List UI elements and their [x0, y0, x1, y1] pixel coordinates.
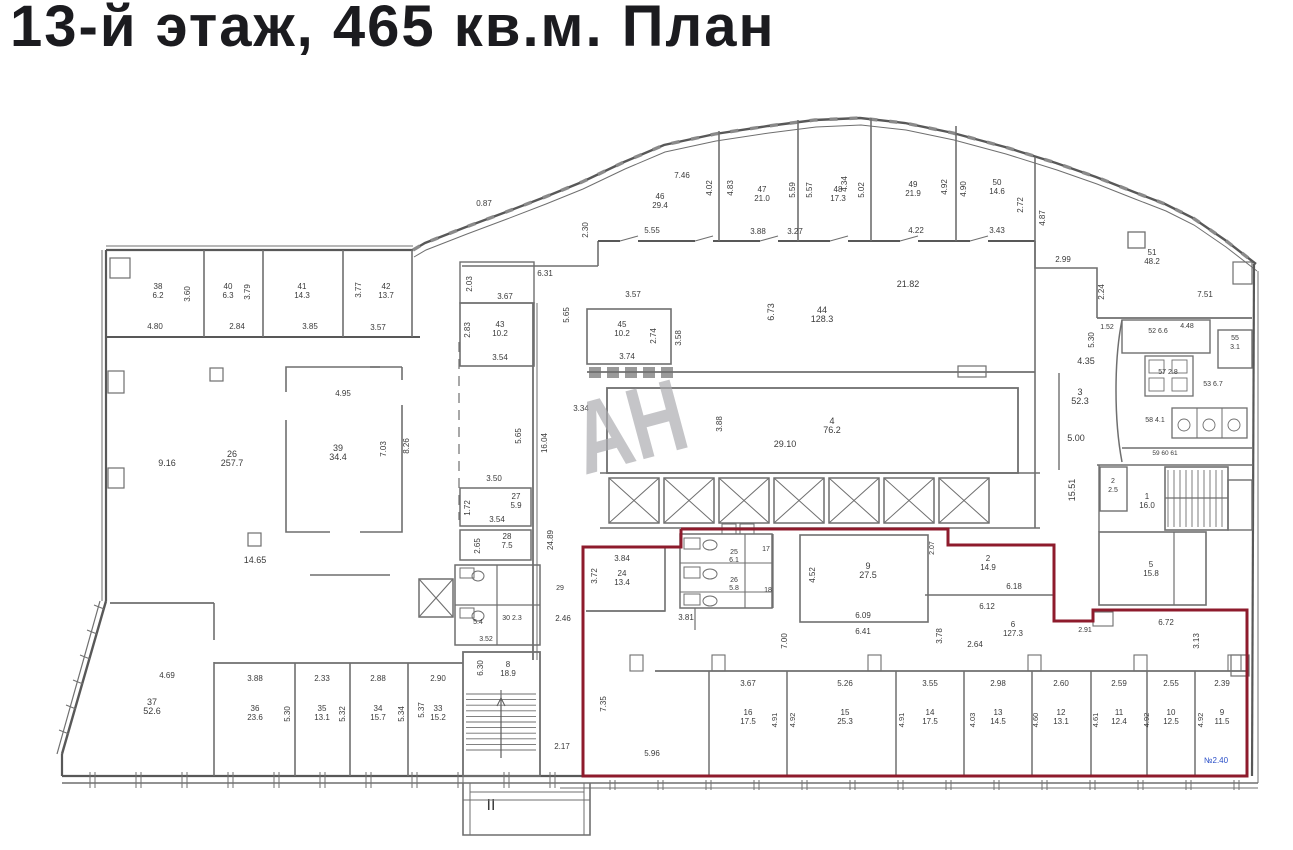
svg-text:3.74: 3.74	[619, 352, 635, 361]
svg-text:3.54: 3.54	[489, 515, 505, 524]
svg-text:27: 27	[512, 492, 521, 501]
svg-text:3.67: 3.67	[497, 292, 513, 301]
svg-text:14.9: 14.9	[980, 563, 996, 572]
svg-text:6.09: 6.09	[855, 611, 871, 620]
svg-text:23.6: 23.6	[247, 713, 263, 722]
svg-text:2.5: 2.5	[1108, 487, 1118, 494]
svg-text:7.46: 7.46	[674, 171, 690, 180]
svg-text:2.83: 2.83	[463, 322, 472, 338]
svg-text:16: 16	[744, 708, 753, 717]
svg-text:10.2: 10.2	[492, 329, 508, 338]
svg-text:5.65: 5.65	[514, 428, 523, 444]
svg-text:6.41: 6.41	[855, 627, 871, 636]
svg-text:36: 36	[251, 704, 260, 713]
svg-text:13.1: 13.1	[1053, 717, 1069, 726]
svg-text:127.3: 127.3	[1003, 629, 1024, 638]
svg-text:1.52: 1.52	[1100, 324, 1114, 331]
svg-text:49: 49	[909, 180, 918, 189]
svg-text:2.90: 2.90	[430, 674, 446, 683]
svg-text:40: 40	[224, 282, 233, 291]
svg-text:2.24: 2.24	[1097, 284, 1106, 300]
svg-text:4.35: 4.35	[1077, 356, 1095, 366]
svg-text:13.7: 13.7	[378, 291, 394, 300]
svg-text:16.0: 16.0	[1139, 501, 1155, 510]
svg-text:27.5: 27.5	[859, 570, 877, 580]
svg-text:4.02: 4.02	[705, 180, 714, 196]
svg-text:4.34: 4.34	[840, 176, 849, 192]
svg-text:3.77: 3.77	[354, 282, 363, 298]
svg-text:2.84: 2.84	[229, 322, 245, 331]
svg-text:3.88: 3.88	[715, 416, 724, 432]
svg-text:1: 1	[1145, 492, 1150, 501]
svg-text:17.3: 17.3	[830, 194, 846, 203]
svg-text:6.73: 6.73	[766, 303, 776, 321]
svg-text:5.57: 5.57	[805, 182, 814, 198]
svg-text:2.46: 2.46	[555, 614, 571, 623]
svg-text:28: 28	[503, 532, 512, 541]
svg-text:4.92: 4.92	[1142, 713, 1151, 728]
svg-text:13.1: 13.1	[314, 713, 330, 722]
svg-text:4.92: 4.92	[940, 179, 949, 195]
svg-text:3.13: 3.13	[1192, 633, 1201, 649]
svg-text:6.31: 6.31	[537, 269, 553, 278]
svg-text:14.3: 14.3	[294, 291, 310, 300]
svg-text:3.57: 3.57	[625, 290, 641, 299]
svg-text:15.2: 15.2	[430, 713, 446, 722]
svg-text:4.90: 4.90	[959, 181, 968, 197]
svg-text:2.59: 2.59	[1111, 679, 1127, 688]
svg-text:41: 41	[298, 282, 307, 291]
svg-text:5.02: 5.02	[857, 182, 866, 198]
svg-text:48.2: 48.2	[1144, 257, 1160, 266]
svg-text:4.03: 4.03	[968, 713, 977, 728]
svg-text:42: 42	[382, 282, 391, 291]
svg-text:1.72: 1.72	[463, 500, 472, 516]
svg-text:6.30: 6.30	[476, 660, 485, 676]
svg-text:16.04: 16.04	[540, 432, 549, 453]
svg-text:4.60: 4.60	[1031, 713, 1040, 728]
svg-text:3.72: 3.72	[590, 568, 599, 584]
svg-text:46: 46	[656, 192, 665, 201]
svg-text:38: 38	[154, 282, 163, 291]
svg-text:АН: АН	[561, 357, 699, 496]
svg-text:7.00: 7.00	[780, 633, 789, 649]
svg-text:43: 43	[496, 320, 505, 329]
svg-text:3.58: 3.58	[674, 330, 683, 346]
svg-text:3.88: 3.88	[247, 674, 263, 683]
svg-text:4.83: 4.83	[726, 180, 735, 196]
svg-text:5.59: 5.59	[788, 182, 797, 198]
svg-text:24.89: 24.89	[546, 529, 555, 550]
svg-text:3.27: 3.27	[787, 227, 803, 236]
svg-text:34.4: 34.4	[329, 452, 347, 462]
svg-text:10.2: 10.2	[614, 329, 630, 338]
svg-text:14.5: 14.5	[990, 717, 1006, 726]
svg-text:21.0: 21.0	[754, 194, 770, 203]
svg-text:2: 2	[986, 554, 991, 563]
svg-text:11.5: 11.5	[1215, 717, 1231, 726]
svg-text:6.12: 6.12	[979, 602, 995, 611]
svg-text:15.7: 15.7	[370, 713, 386, 722]
svg-text:12.5: 12.5	[1163, 717, 1179, 726]
svg-text:6.3: 6.3	[222, 291, 234, 300]
svg-text:18: 18	[764, 587, 772, 594]
svg-text:45: 45	[618, 320, 627, 329]
svg-text:2.72: 2.72	[1016, 197, 1025, 213]
svg-text:17.5: 17.5	[740, 717, 756, 726]
svg-text:4.22: 4.22	[908, 226, 924, 235]
svg-text:5.55: 5.55	[644, 226, 660, 235]
svg-text:3.55: 3.55	[922, 679, 938, 688]
svg-text:4.80: 4.80	[147, 322, 163, 331]
svg-text:5.9: 5.9	[510, 501, 522, 510]
svg-text:6.2: 6.2	[152, 291, 164, 300]
svg-text:29.10: 29.10	[774, 439, 797, 449]
svg-text:5: 5	[1149, 560, 1154, 569]
svg-text:4.69: 4.69	[159, 671, 175, 680]
svg-text:47: 47	[758, 185, 767, 194]
svg-text:4.92: 4.92	[1196, 713, 1205, 728]
svg-text:2: 2	[1111, 478, 1115, 485]
svg-text:52.6: 52.6	[143, 706, 161, 716]
svg-text:29.4: 29.4	[652, 201, 668, 210]
svg-text:3.43: 3.43	[989, 226, 1005, 235]
svg-text:6.18: 6.18	[1006, 582, 1022, 591]
svg-text:0.87: 0.87	[476, 199, 492, 208]
svg-text:5.32: 5.32	[338, 706, 347, 722]
svg-text:6: 6	[1011, 620, 1016, 629]
svg-text:3.84: 3.84	[614, 554, 630, 563]
svg-text:7.5: 7.5	[501, 541, 513, 550]
svg-text:5.30: 5.30	[283, 706, 292, 722]
svg-text:17.5: 17.5	[922, 717, 938, 726]
svg-text:51: 51	[1148, 248, 1157, 257]
svg-text:2.88: 2.88	[370, 674, 386, 683]
svg-text:5.4: 5.4	[473, 619, 483, 626]
svg-text:11: 11	[1115, 708, 1124, 717]
svg-text:5.37: 5.37	[417, 702, 426, 718]
svg-text:14.6: 14.6	[989, 187, 1005, 196]
svg-text:21.9: 21.9	[905, 189, 921, 198]
svg-text:3.60: 3.60	[183, 286, 192, 302]
svg-text:12.4: 12.4	[1111, 717, 1127, 726]
svg-text:18.9: 18.9	[500, 669, 516, 678]
svg-text:35: 35	[318, 704, 327, 713]
svg-text:7.51: 7.51	[1197, 290, 1213, 299]
svg-text:26: 26	[730, 577, 738, 584]
svg-text:5.30: 5.30	[1087, 332, 1096, 348]
svg-text:3.1: 3.1	[1230, 344, 1240, 351]
svg-text:53 6.7: 53 6.7	[1203, 381, 1223, 388]
svg-text:30 2.3: 30 2.3	[502, 615, 522, 622]
svg-text:4.52: 4.52	[808, 567, 817, 583]
svg-text:8.26: 8.26	[402, 438, 411, 454]
svg-text:76.2: 76.2	[823, 425, 841, 435]
svg-text:3.67: 3.67	[740, 679, 756, 688]
svg-text:14: 14	[926, 708, 935, 717]
svg-text:17: 17	[762, 546, 770, 553]
svg-text:3.88: 3.88	[750, 227, 766, 236]
svg-text:6.1: 6.1	[729, 557, 739, 564]
svg-text:24: 24	[618, 569, 627, 578]
svg-text:55: 55	[1231, 335, 1239, 342]
svg-text:15.8: 15.8	[1143, 569, 1159, 578]
svg-text:5.65: 5.65	[562, 307, 571, 323]
svg-text:52.3: 52.3	[1071, 396, 1089, 406]
svg-text:5.8: 5.8	[729, 585, 739, 592]
svg-text:2.91: 2.91	[1078, 627, 1092, 634]
svg-text:15: 15	[841, 708, 850, 717]
svg-text:2.07: 2.07	[929, 541, 936, 555]
svg-text:3.78: 3.78	[935, 628, 944, 644]
svg-text:2.17: 2.17	[554, 742, 570, 751]
svg-text:3.50: 3.50	[486, 474, 502, 483]
svg-text:5.96: 5.96	[644, 749, 660, 758]
svg-text:4.92: 4.92	[788, 713, 797, 728]
svg-text:4.95: 4.95	[335, 389, 351, 398]
svg-text:4.61: 4.61	[1091, 713, 1100, 728]
svg-text:50: 50	[993, 178, 1002, 187]
svg-text:№2.40: №2.40	[1204, 756, 1229, 765]
svg-text:257.7: 257.7	[221, 458, 244, 468]
svg-text:2.99: 2.99	[1055, 255, 1071, 264]
svg-text:7.35: 7.35	[599, 696, 608, 712]
svg-text:58 4.1: 58 4.1	[1145, 417, 1165, 424]
svg-text:2.74: 2.74	[649, 328, 658, 344]
svg-text:2.03: 2.03	[465, 276, 474, 292]
svg-text:2.33: 2.33	[314, 674, 330, 683]
svg-text:52 6.6: 52 6.6	[1148, 328, 1168, 335]
svg-text:4.91: 4.91	[770, 713, 779, 728]
svg-text:2.64: 2.64	[967, 640, 983, 649]
svg-text:3.54: 3.54	[492, 353, 508, 362]
svg-text:7.03: 7.03	[379, 441, 388, 457]
svg-text:8: 8	[506, 660, 511, 669]
svg-text:34: 34	[374, 704, 383, 713]
svg-text:57 2.8: 57 2.8	[1158, 369, 1178, 376]
svg-text:9.16: 9.16	[158, 458, 176, 468]
svg-text:3.79: 3.79	[243, 284, 252, 300]
svg-text:4.87: 4.87	[1038, 210, 1047, 226]
svg-text:4.91: 4.91	[897, 713, 906, 728]
svg-text:14.65: 14.65	[244, 555, 267, 565]
svg-text:29: 29	[556, 585, 564, 592]
svg-text:2.60: 2.60	[1053, 679, 1069, 688]
svg-text:21.82: 21.82	[897, 279, 920, 289]
svg-text:128.3: 128.3	[811, 314, 834, 324]
svg-text:13: 13	[994, 708, 1003, 717]
svg-text:5.34: 5.34	[397, 706, 406, 722]
svg-text:5.00: 5.00	[1067, 433, 1085, 443]
svg-text:2.55: 2.55	[1163, 679, 1179, 688]
svg-text:2.39: 2.39	[1214, 679, 1230, 688]
svg-text:2.98: 2.98	[990, 679, 1006, 688]
svg-text:3.52: 3.52	[479, 636, 493, 643]
svg-text:25: 25	[730, 549, 738, 556]
svg-text:13.4: 13.4	[614, 578, 630, 587]
svg-text:2.65: 2.65	[473, 538, 482, 554]
svg-text:5.26: 5.26	[837, 679, 853, 688]
svg-text:33: 33	[434, 704, 443, 713]
svg-text:2.30: 2.30	[581, 222, 590, 238]
svg-text:4.48: 4.48	[1180, 323, 1194, 330]
svg-text:12: 12	[1057, 708, 1066, 717]
svg-text:3.85: 3.85	[302, 322, 318, 331]
svg-text:6.72: 6.72	[1158, 618, 1174, 627]
svg-text:59 60 61: 59 60 61	[1152, 450, 1178, 457]
svg-text:10: 10	[1167, 708, 1176, 717]
svg-text:15.51: 15.51	[1067, 479, 1077, 502]
svg-text:9: 9	[1220, 708, 1225, 717]
svg-text:25.3: 25.3	[837, 717, 853, 726]
svg-text:3.57: 3.57	[370, 323, 386, 332]
svg-text:3.81: 3.81	[678, 613, 694, 622]
